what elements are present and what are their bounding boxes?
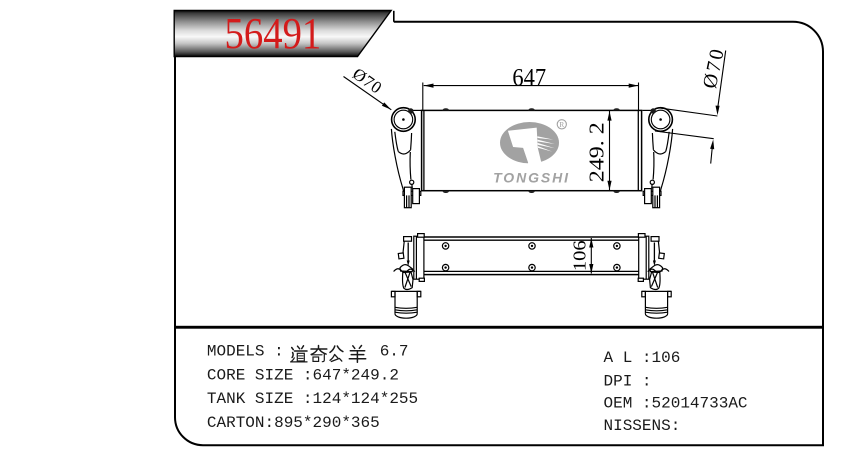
svg-text:TANK SIZE :124*124*255: TANK SIZE :124*124*255: [207, 390, 418, 408]
svg-text:R: R: [559, 120, 564, 129]
svg-text:A L :106: A L :106: [604, 349, 681, 367]
svg-text:6.7: 6.7: [380, 343, 409, 361]
svg-text:106: 106: [571, 240, 590, 271]
svg-text:TONGSHI: TONGSHI: [493, 170, 570, 186]
svg-text:NISSENS:: NISSENS:: [604, 417, 681, 435]
svg-text:MODELS :: MODELS :: [207, 343, 284, 361]
svg-text:Ø70: Ø70: [699, 45, 729, 91]
svg-text:CARTON:895*290*365: CARTON:895*290*365: [207, 414, 380, 432]
svg-text:249. 2: 249. 2: [585, 122, 608, 182]
svg-text:DPI :: DPI :: [604, 373, 652, 391]
svg-text:647: 647: [512, 64, 546, 91]
svg-text:CORE SIZE :647*249.2: CORE SIZE :647*249.2: [207, 366, 399, 384]
svg-text:56491: 56491: [225, 10, 322, 59]
svg-text:OEM :52014733AC: OEM :52014733AC: [604, 395, 748, 413]
